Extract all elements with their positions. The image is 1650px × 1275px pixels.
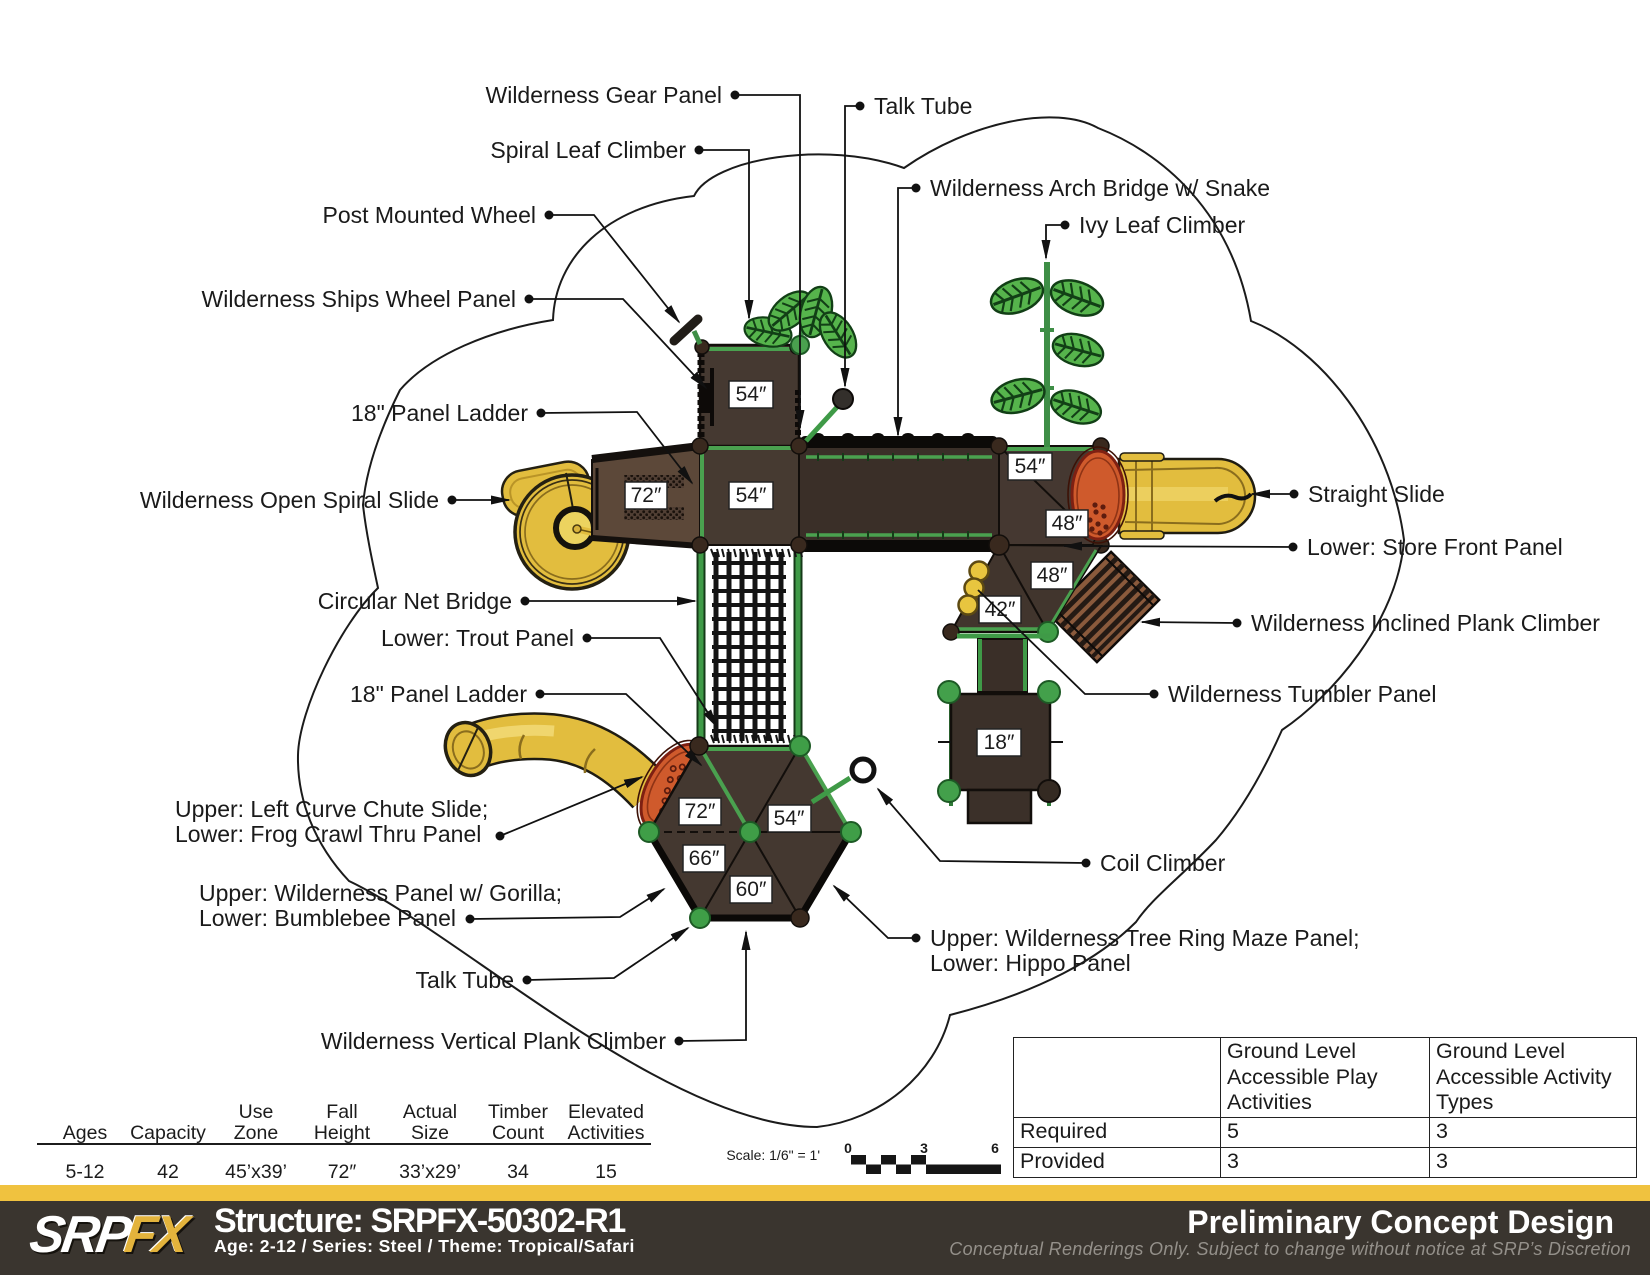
svg-text:Straight Slide: Straight Slide: [1308, 481, 1445, 507]
svg-text:Lower: Store Front Panel: Lower: Store Front Panel: [1307, 534, 1563, 560]
svg-text:Talk Tube: Talk Tube: [874, 93, 972, 119]
svg-text:Circular Net Bridge: Circular Net Bridge: [318, 588, 512, 614]
svg-text:Lower: Bumblebee Panel: Lower: Bumblebee Panel: [199, 905, 456, 931]
svg-text:18" Panel Ladder: 18" Panel Ladder: [351, 400, 528, 426]
svg-text:Wilderness Inclined Plank Clim: Wilderness Inclined Plank Climber: [1251, 610, 1600, 636]
svg-text:Spiral Leaf Climber: Spiral Leaf Climber: [490, 137, 686, 163]
svg-text:Talk Tube: Talk Tube: [416, 967, 514, 993]
svg-text:Upper: Left Curve Chute Slide;: Upper: Left Curve Chute Slide;: [175, 796, 488, 822]
svg-text:18″: 18″: [984, 731, 1015, 754]
svg-text:Lower: Hippo Panel: Lower: Hippo Panel: [930, 950, 1131, 976]
svg-text:54″: 54″: [774, 807, 805, 830]
svg-text:66″: 66″: [689, 847, 720, 870]
svg-text:Lower: Trout Panel: Lower: Trout Panel: [381, 625, 574, 651]
svg-text:Wilderness Open Spiral Slide: Wilderness Open Spiral Slide: [140, 487, 439, 513]
svg-text:Wilderness Arch Bridge w/ Snak: Wilderness Arch Bridge w/ Snake: [930, 175, 1270, 201]
svg-text:48″: 48″: [1052, 512, 1083, 535]
svg-text:Scale: 1/6" = 1': Scale: 1/6" = 1': [726, 1147, 820, 1163]
svg-text:Coil Climber: Coil Climber: [1100, 850, 1226, 876]
svg-text:Ivy Leaf Climber: Ivy Leaf Climber: [1079, 212, 1246, 238]
svg-text:0: 0: [844, 1140, 852, 1156]
svg-text:54″: 54″: [736, 484, 767, 507]
svg-text:Lower: Frog Crawl Thru Panel: Lower: Frog Crawl Thru Panel: [175, 821, 481, 847]
svg-text:18" Panel Ladder: 18" Panel Ladder: [350, 681, 527, 707]
svg-text:Upper: Wilderness Panel w/ Gor: Upper: Wilderness Panel w/ Gorilla;: [199, 880, 562, 906]
svg-text:Upper: Wilderness Tree Ring Ma: Upper: Wilderness Tree Ring Maze Panel;: [930, 925, 1360, 951]
svg-text:54″: 54″: [736, 383, 767, 406]
svg-text:72″: 72″: [631, 484, 662, 507]
svg-text:Wilderness Vertical Plank Clim: Wilderness Vertical Plank Climber: [321, 1028, 666, 1054]
svg-text:54″: 54″: [1015, 455, 1046, 478]
svg-text:48″: 48″: [1037, 564, 1068, 587]
svg-text:Wilderness Gear Panel: Wilderness Gear Panel: [486, 82, 723, 108]
svg-text:Wilderness Tumbler Panel: Wilderness Tumbler Panel: [1168, 681, 1436, 707]
svg-text:72″: 72″: [685, 800, 716, 823]
svg-text:6: 6: [991, 1140, 999, 1156]
svg-text:3: 3: [920, 1140, 928, 1156]
svg-text:Wilderness Ships Wheel Panel: Wilderness Ships Wheel Panel: [202, 286, 516, 312]
svg-text:60″: 60″: [736, 878, 767, 901]
svg-text:Post Mounted Wheel: Post Mounted Wheel: [322, 202, 536, 228]
